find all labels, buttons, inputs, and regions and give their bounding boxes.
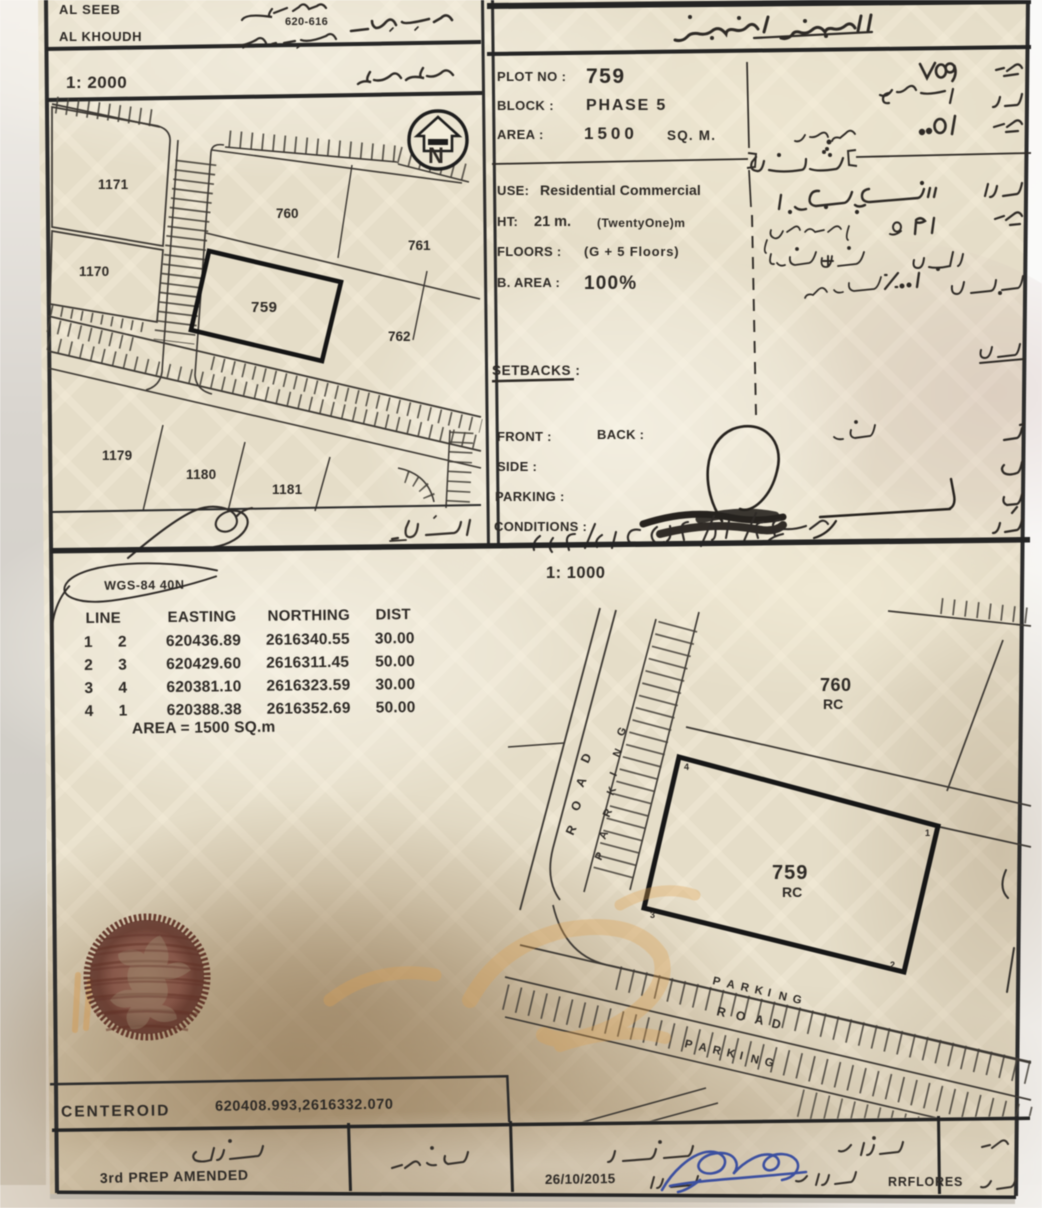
svg-text:620436.89: 620436.89	[166, 632, 241, 650]
svg-text:50.00: 50.00	[375, 653, 415, 670]
svg-text:2616311.45: 2616311.45	[266, 654, 349, 672]
svg-text:N: N	[428, 143, 444, 168]
svg-text:BLOCK :: BLOCK :	[497, 98, 554, 113]
svg-text:1: 1000: 1: 1000	[546, 564, 605, 582]
svg-text:SQ. M.: SQ. M.	[667, 128, 716, 143]
svg-text:761: 761	[408, 238, 431, 253]
svg-text:620408.993,2616332.070: 620408.993,2616332.070	[215, 1097, 394, 1115]
svg-text:1180: 1180	[186, 467, 217, 482]
svg-text:AL SEEB: AL SEEB	[59, 2, 121, 17]
svg-text:RC: RC	[823, 696, 843, 712]
svg-text:CENTEROID: CENTEROID	[61, 1102, 170, 1120]
svg-text:DIST: DIST	[375, 606, 411, 623]
svg-text:759: 759	[586, 65, 626, 88]
svg-text:1: 1	[119, 702, 128, 719]
svg-text:B. AREA :: B. AREA :	[497, 275, 560, 290]
svg-text:26/10/2015: 26/10/2015	[545, 1171, 616, 1187]
svg-text:LINE: LINE	[85, 610, 121, 627]
svg-text:1171: 1171	[98, 177, 129, 192]
svg-text:3: 3	[84, 680, 93, 697]
svg-text:30.00: 30.00	[375, 630, 415, 647]
svg-text:620-616: 620-616	[285, 16, 328, 28]
svg-text:4: 4	[85, 703, 94, 720]
svg-text:2: 2	[890, 960, 895, 970]
svg-text:PHASE 5: PHASE 5	[586, 97, 667, 114]
svg-text:2: 2	[84, 657, 93, 674]
svg-text:3: 3	[118, 657, 127, 674]
svg-text:21 m.: 21 m.	[534, 214, 571, 230]
svg-text:1500: 1500	[584, 124, 638, 143]
svg-text:759: 759	[251, 299, 278, 316]
svg-text:30.00: 30.00	[375, 676, 415, 693]
svg-text:2616323.59: 2616323.59	[266, 677, 350, 695]
svg-text:RRFLORES: RRFLORES	[888, 1175, 963, 1189]
svg-text:4: 4	[684, 762, 689, 772]
svg-text:4: 4	[118, 680, 127, 697]
svg-text:2616352.69: 2616352.69	[267, 700, 351, 718]
svg-text:1179: 1179	[102, 448, 133, 463]
svg-text:2: 2	[118, 634, 127, 651]
svg-text:NORTHING: NORTHING	[267, 607, 350, 625]
svg-text:3rd PREP AMENDED: 3rd PREP AMENDED	[100, 1167, 249, 1186]
svg-text:AL KHOUDH: AL KHOUDH	[59, 29, 142, 44]
svg-text:620381.10: 620381.10	[166, 678, 241, 696]
svg-text:1: 2000: 1: 2000	[66, 73, 127, 92]
svg-text:762: 762	[388, 329, 411, 344]
svg-text:100%: 100%	[584, 273, 637, 294]
svg-text:Residential Commercial: Residential Commercial	[540, 182, 701, 198]
svg-text:PLOT NO :: PLOT NO :	[497, 69, 566, 84]
svg-text:EASTING: EASTING	[167, 608, 236, 626]
svg-text:HT:: HT:	[497, 214, 518, 229]
svg-text:FRONT :: FRONT :	[497, 429, 552, 444]
svg-text:RC: RC	[782, 884, 802, 900]
svg-text:1181: 1181	[272, 482, 303, 497]
svg-text:AREA = 1500 SQ.m: AREA = 1500 SQ.m	[132, 719, 276, 738]
svg-text:620388.38: 620388.38	[167, 701, 242, 719]
svg-text:WGS-84 40N: WGS-84 40N	[104, 578, 185, 593]
svg-text:1: 1	[925, 828, 930, 838]
svg-text:AREA :: AREA :	[497, 127, 544, 142]
svg-text:USE:: USE:	[497, 183, 529, 198]
svg-text:SIDE :: SIDE :	[497, 459, 537, 474]
svg-text:1170: 1170	[79, 264, 110, 279]
svg-text:760: 760	[820, 675, 852, 695]
svg-text:760: 760	[276, 206, 299, 221]
svg-text:50.00: 50.00	[376, 699, 416, 716]
svg-text:(TwentyOne)m: (TwentyOne)m	[597, 216, 685, 230]
svg-text:CONDITIONS :: CONDITIONS :	[494, 519, 587, 534]
svg-text:759: 759	[772, 862, 808, 884]
svg-text:(G + 5 Floors): (G + 5 Floors)	[584, 244, 679, 259]
svg-text:PARKING :: PARKING :	[495, 489, 565, 504]
svg-text:2616340.55: 2616340.55	[266, 631, 350, 649]
svg-text:FLOORS :: FLOORS :	[497, 244, 562, 259]
svg-text:3: 3	[650, 910, 655, 920]
svg-text:BACK :: BACK :	[597, 427, 644, 442]
svg-text:620429.60: 620429.60	[166, 655, 241, 673]
svg-text:SETBACKS :: SETBACKS :	[492, 363, 581, 378]
svg-text:1: 1	[84, 634, 93, 651]
